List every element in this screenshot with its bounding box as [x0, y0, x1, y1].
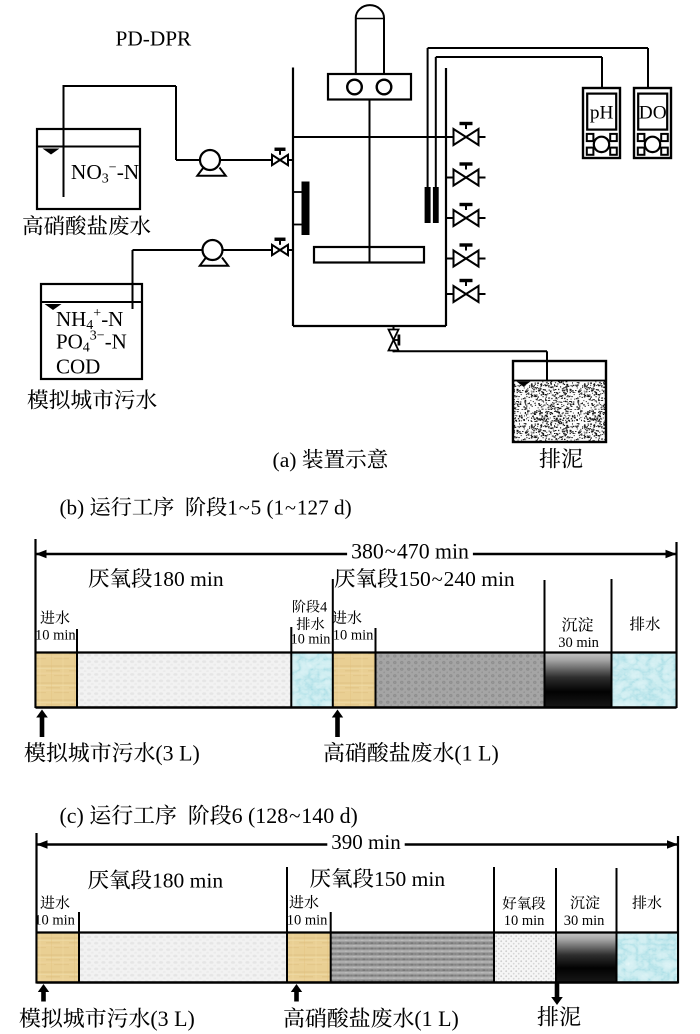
svg-text:3−: 3− [90, 328, 105, 343]
svg-text:NH: NH [56, 307, 86, 331]
svg-text:3: 3 [102, 171, 109, 186]
svg-text:COD: COD [56, 355, 100, 379]
svg-text:(1 L): (1 L) [454, 741, 498, 766]
svg-text:5 (1: 5 (1 [251, 496, 285, 520]
svg-text:1: 1 [227, 496, 238, 520]
svg-text:4: 4 [320, 600, 327, 616]
svg-text:(3 L): (3 L) [155, 741, 199, 766]
svg-text:(b): (b) [60, 496, 85, 520]
svg-text:30 min: 30 min [564, 913, 605, 929]
svg-text:~: ~ [239, 496, 250, 520]
svg-text:6 (128: 6 (128 [232, 803, 289, 828]
svg-text:~: ~ [289, 803, 301, 828]
svg-text:127 d): 127 d) [297, 496, 352, 520]
svg-text:(a): (a) [273, 448, 297, 472]
svg-text:140 d): 140 d) [301, 803, 358, 828]
svg-text:PO: PO [56, 329, 83, 353]
svg-text:180 min: 180 min [153, 567, 224, 591]
svg-text:10 min: 10 min [34, 913, 75, 929]
svg-text:10 min: 10 min [287, 913, 328, 929]
svg-text:~: ~ [385, 540, 396, 564]
svg-text:10 min: 10 min [504, 913, 545, 929]
svg-text:DO: DO [639, 102, 667, 123]
svg-text:pH: pH [590, 102, 614, 123]
svg-text:10 min: 10 min [35, 627, 76, 643]
svg-text:~: ~ [285, 496, 296, 520]
svg-text:PD-DPR: PD-DPR [116, 26, 193, 50]
svg-text:30 min: 30 min [558, 635, 599, 651]
svg-text:380: 380 [351, 540, 384, 564]
svg-text:~: ~ [432, 567, 444, 591]
svg-text:(3 L): (3 L) [150, 1006, 194, 1031]
svg-text:(c): (c) [60, 803, 84, 828]
svg-text:NO: NO [71, 160, 102, 184]
svg-text:-N: -N [117, 160, 140, 184]
svg-text:10 min: 10 min [291, 632, 331, 648]
svg-text:470 min: 470 min [397, 540, 469, 564]
svg-text:−: − [109, 161, 117, 176]
svg-text:-N: -N [105, 329, 127, 353]
svg-text:240 min: 240 min [444, 567, 515, 591]
svg-text:4: 4 [83, 340, 90, 355]
svg-text:150 min: 150 min [374, 867, 445, 891]
svg-text:390 min: 390 min [331, 830, 401, 854]
svg-text:+: + [93, 306, 101, 321]
svg-text:10 min: 10 min [333, 627, 374, 643]
svg-text:(1 L): (1 L) [414, 1006, 458, 1031]
svg-text:150: 150 [399, 567, 431, 591]
svg-text:180 min: 180 min [152, 869, 223, 893]
